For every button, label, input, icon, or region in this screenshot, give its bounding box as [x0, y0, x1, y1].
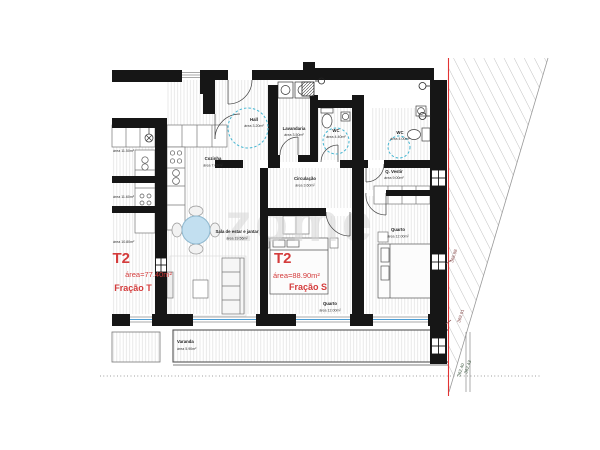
- wc1-area: área 4.40m²: [326, 135, 346, 139]
- fracao-s-area: área=88.90m²: [273, 271, 320, 280]
- wall-party: [155, 118, 167, 316]
- wc1-name: WC: [332, 128, 339, 133]
- coffee-table: [193, 280, 208, 298]
- wall-wc1-bottom: [340, 160, 352, 168]
- wall-lav-left: [268, 85, 278, 155]
- washbasin-1-icon: [341, 112, 350, 121]
- wall-lav-right: [310, 95, 318, 162]
- varanda-area: área 5.90m²: [177, 347, 197, 351]
- top-window: [182, 73, 200, 78]
- kitchen-counter-left: [167, 147, 185, 230]
- floor-plan-drawing: zome: [0, 0, 600, 450]
- wall-lav-bottom-a: [268, 155, 280, 168]
- quarto-dir-name: Quarto: [391, 227, 405, 232]
- quarto-dir-area: área 12.00m²: [387, 235, 409, 239]
- wall-bedrooms-divider: [352, 168, 364, 316]
- sala-area: área 19.56m²: [226, 237, 248, 241]
- sala-name: Sala de estar e jantar: [216, 229, 259, 234]
- wall-vestir-top-b: [384, 160, 432, 168]
- vestir-name: Q. Vestir: [385, 169, 403, 174]
- wall-circ-bottom: [268, 208, 326, 216]
- quarto-meio-area: área 12.00m²: [319, 309, 341, 313]
- facade-pier-4: [350, 314, 373, 326]
- sofa: [222, 258, 244, 314]
- dining-table: [182, 216, 210, 244]
- wall-wc1-top: [318, 100, 352, 108]
- wall-vestir-top-a: [364, 160, 368, 168]
- wall-t-mid2: [112, 206, 155, 213]
- fracao-t-name: Fração T: [114, 283, 152, 293]
- facade-pier-3: [256, 314, 296, 326]
- wall-vestir-bottom: [386, 190, 432, 196]
- vent-window-right-2: [432, 254, 446, 270]
- wall-wc1-right: [352, 95, 364, 168]
- wc2-area: área 4.00m²: [390, 137, 410, 141]
- floor-varanda: [173, 330, 450, 362]
- t-room-area-1: área 11.50m²: [113, 149, 135, 153]
- wall-living-right: [260, 168, 268, 316]
- facade-pier-1: [112, 314, 130, 326]
- hall-area: área 3.20m²: [244, 124, 264, 128]
- fracao-s-name: Fração S: [289, 282, 327, 292]
- washbasin-2-icon: [416, 106, 426, 116]
- circulacao-name: Circulação: [294, 176, 316, 181]
- t-room-area-2: área 11.60m²: [113, 195, 135, 199]
- ventilation-shaft: [302, 82, 314, 96]
- fracao-s-title: T2: [274, 250, 292, 267]
- wall-hall-left: [203, 74, 215, 114]
- lavandaria-name: Lavandaria: [283, 126, 306, 131]
- vent-window-right-1: [432, 170, 446, 186]
- varanda-name: Varanda: [177, 339, 194, 344]
- fracao-t-area: área=77.40m²: [125, 270, 172, 279]
- cozinha-area: área 7.08m²: [203, 164, 223, 168]
- floor-hall: [215, 80, 268, 160]
- wall-vent-icon-1: [419, 83, 431, 90]
- wall-t-mid1: [112, 176, 155, 183]
- wall-t-top: [112, 118, 155, 128]
- wall-top-right: [312, 68, 434, 80]
- elevation-mark-4: 362.43: [463, 359, 472, 374]
- hall-name: Hall: [250, 117, 258, 122]
- wall-top-left: [112, 70, 182, 82]
- vestir-area: área 9.00m²: [384, 176, 404, 180]
- bed-right: [378, 244, 432, 298]
- floor-plan-canvas: zome: [0, 0, 600, 450]
- floor-varanda-t: [112, 332, 160, 362]
- fracao-t-title: T2: [112, 250, 130, 267]
- lavandaria-area: área 3.50m²: [284, 133, 304, 137]
- facade-pier-5: [428, 314, 447, 326]
- kitchen-counter-top: [167, 125, 227, 147]
- wc2-name: WC: [396, 130, 403, 135]
- cozinha-name: Cozinha: [205, 156, 222, 161]
- quarto-meio-name: Quarto: [323, 301, 337, 306]
- facade-pier-2: [152, 314, 193, 326]
- vent-window-right-3: [432, 338, 446, 354]
- t-room-area-3: área 10.80m²: [113, 240, 135, 244]
- circulacao-area: área 3.60m²: [295, 184, 315, 188]
- toilet-1-icon: [321, 108, 333, 128]
